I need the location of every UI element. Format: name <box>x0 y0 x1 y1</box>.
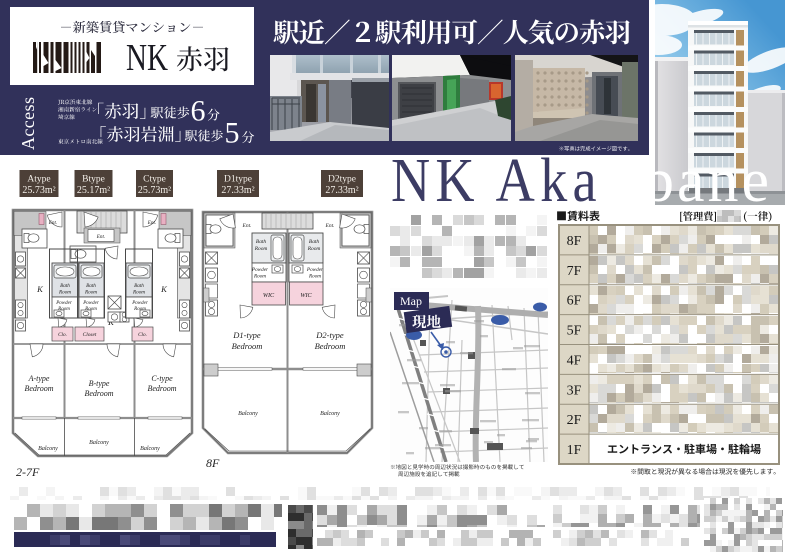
svg-text:5F: 5F <box>567 324 582 339</box>
svg-text:Bedroom: Bedroom <box>147 384 176 393</box>
svg-text:bane: bane <box>643 147 772 215</box>
svg-text:Bath: Bath <box>60 283 70 289</box>
svg-text:25.17m²: 25.17m² <box>77 185 110 196</box>
svg-text:Closet: Closet <box>83 332 97 338</box>
svg-text:Btype: Btype <box>82 175 105 185</box>
svg-text:D1type: D1type <box>224 175 252 185</box>
svg-text:1F: 1F <box>567 443 582 458</box>
svg-text:Balcony: Balcony <box>140 446 160 452</box>
svg-text:Ent.: Ent. <box>324 223 334 229</box>
svg-text:Balcony: Balcony <box>238 411 258 417</box>
svg-text:Powder: Powder <box>251 267 269 273</box>
svg-text:Powder: Powder <box>82 301 99 306</box>
svg-text:Bath: Bath <box>134 283 144 289</box>
svg-text:NK Aka: NK Aka <box>391 146 602 215</box>
svg-text:Bedroom: Bedroom <box>24 384 53 393</box>
svg-text:Map: Map <box>400 294 422 308</box>
svg-text:2F: 2F <box>567 413 582 428</box>
svg-text:D2type: D2type <box>328 175 356 185</box>
svg-text:Ent.: Ent. <box>147 220 157 226</box>
svg-text:Bedroom: Bedroom <box>232 341 263 351</box>
svg-text:Powder: Powder <box>55 301 72 306</box>
svg-text:4F: 4F <box>567 353 582 368</box>
svg-text:Room: Room <box>308 274 321 280</box>
svg-text:Room: Room <box>58 290 71 296</box>
svg-text:8F: 8F <box>567 234 582 249</box>
svg-text:Balcony: Balcony <box>38 446 58 452</box>
svg-text:Bedroom: Bedroom <box>84 389 113 398</box>
svg-text:B-type: B-type <box>89 379 110 388</box>
svg-text:WIC: WIC <box>300 292 312 299</box>
svg-text:D2-type: D2-type <box>315 330 344 340</box>
svg-text:Room: Room <box>307 246 321 252</box>
svg-text:Powder: Powder <box>306 267 324 273</box>
svg-text:3F: 3F <box>567 383 582 398</box>
svg-text:27.33m²: 27.33m² <box>221 185 254 196</box>
svg-text:6F: 6F <box>567 294 582 309</box>
svg-text:Access: Access <box>18 97 38 150</box>
svg-text:Clo.: Clo. <box>58 332 67 338</box>
svg-text:25.73m²: 25.73m² <box>138 185 171 196</box>
svg-text:Room: Room <box>253 274 266 280</box>
svg-text:Room: Room <box>132 290 145 296</box>
svg-text:Balcony: Balcony <box>320 411 340 417</box>
svg-text:NK: NK <box>126 37 168 79</box>
svg-text:Room: Room <box>84 290 97 296</box>
svg-text:Bedroom: Bedroom <box>315 341 346 351</box>
svg-text:27.33m²: 27.33m² <box>325 185 358 196</box>
svg-text:25.73m²: 25.73m² <box>22 185 55 196</box>
svg-text:C-type: C-type <box>151 374 173 383</box>
svg-text:Room: Room <box>254 246 268 252</box>
svg-text:Ent.: Ent. <box>48 220 58 226</box>
svg-text:5: 5 <box>225 117 240 150</box>
svg-text:6: 6 <box>191 95 206 128</box>
svg-text:Balcony: Balcony <box>89 440 109 446</box>
svg-text:2-7F: 2-7F <box>16 465 40 479</box>
svg-text:A-type: A-type <box>28 374 50 383</box>
svg-text:Bath: Bath <box>86 283 96 289</box>
svg-text:Atype: Atype <box>27 175 50 185</box>
svg-text:8F: 8F <box>206 456 220 470</box>
svg-text:Ent.: Ent. <box>241 223 251 229</box>
svg-text:Bath: Bath <box>256 239 266 245</box>
svg-text:7F: 7F <box>567 264 582 279</box>
svg-text:WIC: WIC <box>263 292 275 299</box>
svg-text:Bath: Bath <box>309 239 319 245</box>
svg-text:Powder: Powder <box>131 301 148 306</box>
svg-text:Ent.: Ent. <box>96 234 106 240</box>
svg-text:Clo.: Clo. <box>138 332 147 338</box>
svg-text:Ctype: Ctype <box>143 175 166 185</box>
svg-text:D1-type: D1-type <box>232 330 261 340</box>
